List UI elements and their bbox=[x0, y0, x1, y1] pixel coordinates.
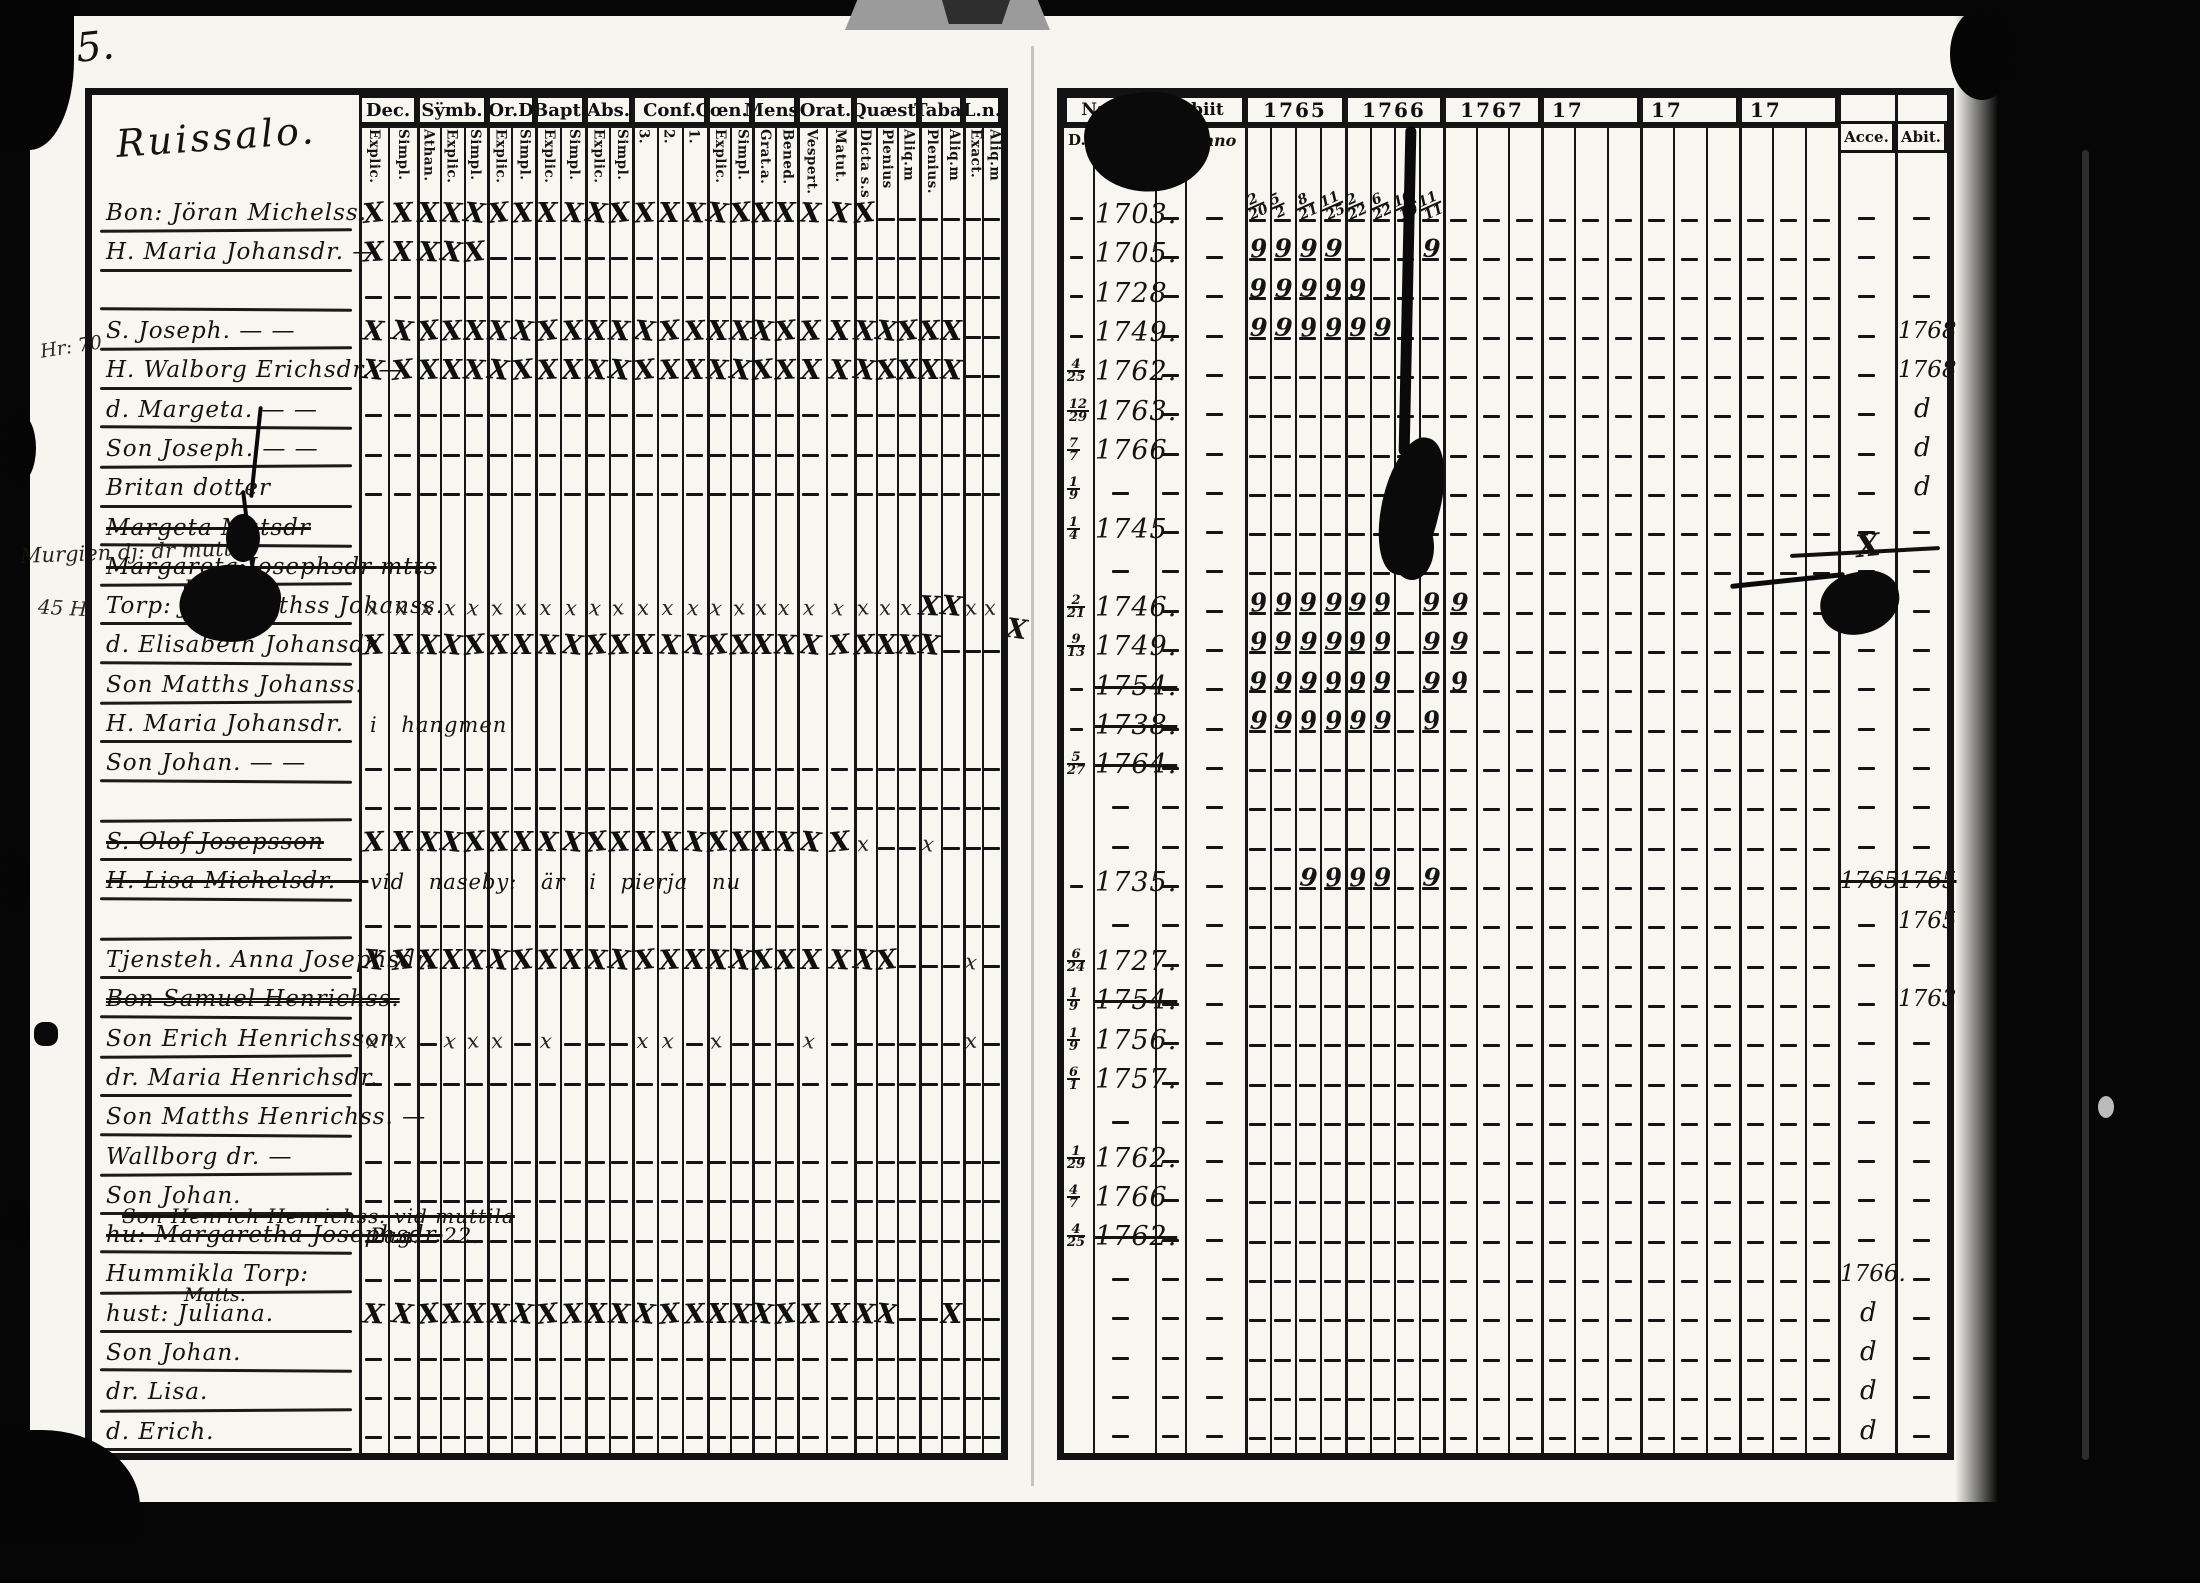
empty-mark-dash bbox=[394, 1083, 411, 1086]
empty-mark-dash bbox=[899, 1397, 916, 1400]
empty-mark-dash bbox=[1913, 295, 1930, 298]
empty-mark-dash bbox=[1206, 1003, 1223, 1006]
communion-mark: 9 bbox=[1421, 862, 1441, 893]
birth-year: 1756. bbox=[1095, 1025, 1177, 1056]
empty-mark-dash bbox=[1274, 1084, 1291, 1087]
attendance-x-mark: X bbox=[683, 197, 706, 229]
empty-mark-dash bbox=[732, 257, 749, 260]
empty-mark-dash bbox=[1714, 258, 1731, 261]
empty-mark-dash bbox=[636, 296, 653, 299]
empty-mark-dash bbox=[1648, 1084, 1665, 1087]
empty-mark-dash bbox=[856, 1240, 873, 1243]
attendance-x-mark: X bbox=[536, 355, 559, 387]
communion-mark: 9 bbox=[1421, 705, 1441, 736]
empty-mark-dash bbox=[1913, 1239, 1930, 1242]
birth-year: 1762. bbox=[1095, 356, 1177, 387]
birth-day-fraction: 77 bbox=[1067, 438, 1080, 462]
empty-mark-dash bbox=[1324, 1084, 1341, 1087]
empty-mark-dash bbox=[732, 296, 749, 299]
empty-mark-dash bbox=[777, 807, 794, 810]
empty-mark-dash bbox=[394, 1161, 411, 1164]
empty-mark-dash bbox=[1206, 924, 1223, 927]
empty-mark-dash bbox=[443, 296, 460, 299]
birth-year: 1766 bbox=[1095, 1182, 1168, 1213]
empty-mark-dash bbox=[1324, 808, 1341, 811]
empty-mark-dash bbox=[588, 296, 605, 299]
left-page-title: Ruissalo. bbox=[115, 108, 318, 166]
empty-mark-dash bbox=[1299, 1280, 1316, 1283]
empty-mark-dash bbox=[1249, 415, 1266, 418]
subcolumn-header: Explic. bbox=[541, 129, 555, 193]
birth-day-fraction: 14 bbox=[1067, 517, 1080, 541]
empty-mark-dash bbox=[365, 807, 382, 810]
film-streak bbox=[2082, 150, 2089, 1460]
empty-mark-dash bbox=[1516, 1162, 1533, 1165]
column-header: Sÿmb. bbox=[417, 95, 487, 125]
attendance-x-mark: X bbox=[392, 630, 413, 661]
empty-mark-dash bbox=[1549, 848, 1566, 851]
attendance-x-mark: X bbox=[773, 315, 797, 348]
abiit-ditto: d bbox=[1914, 433, 1931, 463]
empty-mark-dash bbox=[1450, 1201, 1467, 1204]
empty-mark-dash bbox=[564, 296, 581, 299]
empty-mark-dash bbox=[831, 1043, 848, 1046]
empty-mark-dash bbox=[1450, 572, 1467, 575]
attendance-x-mark: X bbox=[874, 1298, 898, 1331]
empty-mark-dash bbox=[1274, 1005, 1291, 1008]
empty-mark-dash bbox=[1324, 1437, 1341, 1440]
empty-mark-dash bbox=[1780, 376, 1797, 379]
empty-mark-dash bbox=[365, 768, 382, 771]
attendance-x-mark: X bbox=[361, 944, 385, 977]
empty-mark-dash bbox=[1348, 376, 1365, 379]
column-rule bbox=[1895, 95, 1898, 1453]
empty-mark-dash bbox=[1249, 1162, 1266, 1165]
empty-mark-dash bbox=[1714, 572, 1731, 575]
communion-mark: 9 bbox=[1349, 313, 1366, 342]
attendance-x-mark: X bbox=[439, 629, 463, 662]
empty-mark-dash bbox=[1483, 1201, 1500, 1204]
empty-mark-dash bbox=[1397, 769, 1414, 772]
attendance-x-mark: X bbox=[537, 198, 558, 229]
communion-mark: 9 bbox=[1373, 706, 1392, 736]
empty-mark-dash bbox=[1162, 1121, 1179, 1124]
empty-mark-dash bbox=[1582, 1005, 1599, 1008]
empty-mark-dash bbox=[983, 965, 1000, 968]
attendance-x-mark-light: x bbox=[540, 596, 552, 620]
empty-mark-dash bbox=[732, 493, 749, 496]
empty-mark-dash bbox=[856, 1279, 873, 1282]
subcolumn-header: Simpl. bbox=[566, 129, 580, 193]
attendance-x-mark: X bbox=[511, 197, 534, 229]
attendance-x-mark: X bbox=[799, 826, 823, 859]
empty-mark-dash bbox=[1373, 219, 1390, 222]
communion-mark: 9 bbox=[1374, 667, 1391, 696]
empty-mark-dash bbox=[636, 1397, 653, 1400]
empty-mark-dash bbox=[1422, 297, 1439, 300]
empty-mark-dash bbox=[1549, 651, 1566, 654]
attendance-x-mark: X bbox=[896, 630, 919, 662]
empty-mark-dash bbox=[754, 1397, 771, 1400]
empty-mark-dash bbox=[1858, 1160, 1875, 1163]
empty-mark-dash bbox=[899, 1161, 916, 1164]
empty-mark-dash bbox=[1483, 455, 1500, 458]
scanner-tab-dark bbox=[942, 0, 1010, 24]
empty-mark-dash bbox=[394, 1200, 411, 1203]
subcolumn-header: 2. bbox=[661, 129, 675, 193]
attendance-x-mark: X bbox=[706, 355, 729, 387]
attendance-x-mark-light: x bbox=[611, 595, 626, 620]
empty-mark-dash bbox=[1516, 1241, 1533, 1244]
birth-year: 1762. bbox=[1095, 1143, 1177, 1174]
empty-mark-dash bbox=[611, 768, 628, 771]
empty-mark-dash bbox=[365, 1436, 382, 1439]
empty-mark-dash bbox=[1348, 1241, 1365, 1244]
empty-mark-dash bbox=[1615, 966, 1632, 969]
attendance-x-mark: X bbox=[562, 355, 583, 386]
empty-mark-dash bbox=[686, 1161, 703, 1164]
attendance-x-mark: X bbox=[874, 354, 898, 387]
empty-mark-dash bbox=[899, 965, 916, 968]
abiit-year: 1768 bbox=[1898, 318, 1957, 344]
empty-mark-dash bbox=[1615, 1123, 1632, 1126]
empty-mark-dash bbox=[802, 1358, 819, 1361]
empty-mark-dash bbox=[1274, 848, 1291, 851]
empty-mark-dash bbox=[943, 257, 960, 260]
empty-mark-dash bbox=[1714, 1162, 1731, 1165]
empty-mark-dash bbox=[802, 1200, 819, 1203]
empty-mark-dash bbox=[1813, 1437, 1830, 1440]
attendance-x-mark: X bbox=[706, 197, 730, 230]
empty-mark-dash bbox=[420, 807, 437, 810]
empty-mark-dash bbox=[420, 1083, 437, 1086]
name-ruling-line bbox=[100, 269, 352, 272]
empty-mark-dash bbox=[878, 925, 895, 928]
empty-mark-dash bbox=[661, 925, 678, 928]
attendance-x-mark: X bbox=[658, 826, 681, 858]
empty-mark-dash bbox=[1206, 964, 1223, 967]
empty-mark-dash bbox=[943, 1279, 960, 1282]
communion-mark: 9 bbox=[1323, 862, 1343, 893]
empty-mark-dash bbox=[1450, 1044, 1467, 1047]
empty-mark-dash bbox=[490, 768, 507, 771]
empty-mark-dash bbox=[1615, 651, 1632, 654]
empty-mark-dash bbox=[1858, 1082, 1875, 1085]
subcolumn-header: Explic. bbox=[493, 129, 507, 193]
empty-mark-dash bbox=[394, 768, 411, 771]
subcolumn-rule bbox=[1607, 125, 1609, 1453]
birth-day-fraction: 221 bbox=[1067, 595, 1085, 619]
empty-mark-dash bbox=[1648, 966, 1665, 969]
empty-mark-dash bbox=[1913, 1317, 1930, 1320]
attendance-x-mark: X bbox=[418, 198, 439, 229]
empty-mark-dash bbox=[1516, 258, 1533, 261]
empty-mark-dash bbox=[732, 1161, 749, 1164]
attendance-x-mark: X bbox=[634, 630, 655, 661]
empty-mark-dash bbox=[1373, 1162, 1390, 1165]
empty-mark-dash bbox=[878, 768, 895, 771]
abiit-year: 1765 bbox=[1898, 908, 1957, 934]
empty-mark-dash bbox=[394, 454, 411, 457]
empty-mark-dash bbox=[1780, 533, 1797, 536]
attendance-x-mark: X bbox=[510, 315, 534, 348]
empty-mark-dash bbox=[539, 1279, 556, 1282]
empty-mark-dash bbox=[1206, 217, 1223, 220]
empty-mark-dash bbox=[1858, 1199, 1875, 1202]
subcolumn-header: Explic. bbox=[591, 129, 605, 193]
empty-mark-dash bbox=[661, 493, 678, 496]
attendance-x-mark: X bbox=[561, 315, 584, 347]
empty-mark-dash bbox=[1615, 1005, 1632, 1008]
attendance-x-mark: X bbox=[586, 316, 607, 347]
empty-mark-dash bbox=[1813, 1123, 1830, 1126]
birth-year: 1738. bbox=[1095, 710, 1177, 741]
empty-mark-dash bbox=[983, 257, 1000, 260]
attendance-x-mark-light: x bbox=[802, 1028, 817, 1053]
attendance-x-mark: X bbox=[362, 315, 385, 347]
empty-mark-dash bbox=[1483, 1437, 1500, 1440]
attendance-x-mark: X bbox=[510, 944, 534, 977]
empty-mark-dash bbox=[1582, 808, 1599, 811]
empty-mark-dash bbox=[1648, 1201, 1665, 1204]
attendance-x-mark: X bbox=[362, 826, 385, 858]
empty-mark-dash bbox=[1813, 808, 1830, 811]
attendance-x-mark-light: x bbox=[709, 1028, 724, 1053]
empty-mark-dash bbox=[564, 1043, 581, 1046]
attendance-x-mark: X bbox=[827, 629, 851, 662]
empty-mark-dash bbox=[964, 1083, 981, 1086]
attendance-x-mark: X bbox=[510, 1298, 534, 1331]
empty-mark-dash bbox=[564, 768, 581, 771]
empty-mark-dash bbox=[1681, 690, 1698, 693]
birth-year: 1766 bbox=[1095, 435, 1168, 466]
empty-mark-dash bbox=[466, 1358, 483, 1361]
empty-mark-dash bbox=[1549, 1044, 1566, 1047]
empty-mark-dash bbox=[899, 1200, 916, 1203]
empty-mark-dash bbox=[1780, 808, 1797, 811]
attendance-x-mark-light: x bbox=[662, 596, 674, 620]
empty-mark-dash bbox=[1450, 808, 1467, 811]
name-ruling-line bbox=[100, 464, 352, 469]
empty-mark-dash bbox=[1648, 887, 1665, 890]
empty-mark-dash bbox=[1483, 1044, 1500, 1047]
empty-mark-dash bbox=[1422, 1319, 1439, 1322]
empty-mark-dash bbox=[1780, 337, 1797, 340]
empty-mark-dash bbox=[754, 1200, 771, 1203]
empty-mark-dash bbox=[661, 1200, 678, 1203]
subcolumn-rule bbox=[1370, 125, 1372, 1453]
empty-mark-dash bbox=[1813, 1201, 1830, 1204]
empty-mark-dash bbox=[1249, 926, 1266, 929]
empty-mark-dash bbox=[1162, 256, 1179, 259]
scanned-register-page: 5. Ruissalo. Dec.Explic.Simpl.Sÿmb.Athan… bbox=[0, 0, 2200, 1583]
empty-mark-dash bbox=[899, 807, 916, 810]
empty-mark-dash bbox=[1249, 1201, 1266, 1204]
empty-mark-dash bbox=[611, 1279, 628, 1282]
empty-mark-dash bbox=[1780, 1280, 1797, 1283]
empty-mark-dash bbox=[394, 414, 411, 417]
empty-mark-dash bbox=[1450, 533, 1467, 536]
empty-mark-dash bbox=[1714, 966, 1731, 969]
empty-mark-dash bbox=[420, 1161, 437, 1164]
empty-mark-dash bbox=[611, 1358, 628, 1361]
empty-mark-dash bbox=[443, 1161, 460, 1164]
empty-mark-dash bbox=[611, 1397, 628, 1400]
empty-mark-dash bbox=[1681, 1280, 1698, 1283]
attendance-x-mark: X bbox=[729, 1298, 752, 1330]
empty-mark-dash bbox=[514, 296, 531, 299]
empty-mark-dash bbox=[1648, 1241, 1665, 1244]
entry-name: dr. Maria Henrichsdr. bbox=[106, 1065, 378, 1091]
empty-mark-dash bbox=[964, 1200, 981, 1203]
empty-mark-dash bbox=[1681, 848, 1698, 851]
empty-mark-dash bbox=[1516, 1280, 1533, 1283]
empty-mark-dash bbox=[1615, 533, 1632, 536]
empty-mark-dash bbox=[1274, 1319, 1291, 1322]
empty-mark-dash bbox=[539, 768, 556, 771]
empty-mark-dash bbox=[1615, 769, 1632, 772]
empty-mark-dash bbox=[365, 1397, 382, 1400]
empty-mark-dash bbox=[1397, 887, 1414, 890]
empty-mark-dash bbox=[564, 1083, 581, 1086]
empty-mark-dash bbox=[1324, 1241, 1341, 1244]
attendance-x-mark: X bbox=[584, 197, 608, 230]
empty-mark-dash bbox=[611, 925, 628, 928]
empty-mark-dash bbox=[1615, 887, 1632, 890]
empty-mark-dash bbox=[365, 414, 382, 417]
empty-mark-dash bbox=[899, 847, 916, 850]
empty-mark-dash bbox=[1373, 926, 1390, 929]
birth-year: 1754. bbox=[1095, 671, 1177, 702]
empty-mark-dash bbox=[1780, 572, 1797, 575]
empty-mark-dash bbox=[1582, 1123, 1599, 1126]
attendance-x-mark: X bbox=[584, 629, 608, 662]
empty-mark-dash bbox=[1397, 1319, 1414, 1322]
name-ruling-line bbox=[100, 1330, 352, 1333]
empty-mark-dash bbox=[1373, 376, 1390, 379]
empty-mark-dash bbox=[1813, 1359, 1830, 1362]
attendance-x-mark: X bbox=[799, 1298, 822, 1330]
empty-mark-dash bbox=[1397, 966, 1414, 969]
empty-mark-dash bbox=[1450, 1162, 1467, 1165]
communion-mark: 9 bbox=[1323, 627, 1343, 658]
empty-mark-dash bbox=[1483, 769, 1500, 772]
empty-mark-dash bbox=[1858, 295, 1875, 298]
empty-mark-dash bbox=[1780, 1123, 1797, 1126]
empty-mark-dash bbox=[1747, 1123, 1764, 1126]
attendance-x-mark-light: x bbox=[490, 1028, 503, 1053]
empty-mark-dash bbox=[1549, 297, 1566, 300]
empty-mark-dash bbox=[983, 218, 1000, 221]
empty-mark-dash bbox=[514, 493, 531, 496]
empty-mark-dash bbox=[1813, 1005, 1830, 1008]
empty-mark-dash bbox=[490, 454, 507, 457]
empty-mark-dash bbox=[539, 1436, 556, 1439]
empty-mark-dash bbox=[1373, 966, 1390, 969]
empty-mark-dash bbox=[1249, 1437, 1266, 1440]
attendance-x-mark: X bbox=[417, 355, 440, 387]
empty-mark-dash bbox=[1206, 1042, 1223, 1045]
birth-year: 1745 bbox=[1095, 514, 1168, 545]
name-ruling-line bbox=[100, 818, 352, 823]
empty-mark-dash bbox=[802, 925, 819, 928]
empty-mark-dash bbox=[921, 1358, 938, 1361]
empty-mark-dash bbox=[1249, 572, 1266, 575]
empty-mark-dash bbox=[420, 296, 437, 299]
empty-mark-dash bbox=[943, 1043, 960, 1046]
empty-mark-dash bbox=[1913, 846, 1930, 849]
empty-mark-dash bbox=[856, 807, 873, 810]
empty-mark-dash bbox=[490, 414, 507, 417]
attendance-x-mark: X bbox=[728, 944, 752, 977]
empty-mark-dash bbox=[1747, 966, 1764, 969]
empty-mark-dash bbox=[1274, 1359, 1291, 1362]
accessit-scribble-x: X bbox=[1854, 527, 1882, 565]
subcolumn-header: Bened. bbox=[780, 129, 794, 193]
empty-mark-dash bbox=[420, 1043, 437, 1046]
empty-mark-dash bbox=[1813, 1280, 1830, 1283]
attendance-x-mark: X bbox=[657, 1298, 681, 1331]
empty-mark-dash bbox=[1112, 1357, 1129, 1360]
empty-mark-dash bbox=[611, 1436, 628, 1439]
communion-mark: 9 bbox=[1249, 313, 1268, 343]
empty-mark-dash bbox=[1648, 848, 1665, 851]
empty-mark-dash bbox=[1162, 453, 1179, 456]
accessit-header: Acce. bbox=[1838, 121, 1895, 153]
empty-mark-dash bbox=[1582, 1162, 1599, 1165]
attendance-x-mark: X bbox=[608, 197, 632, 230]
empty-mark-dash bbox=[856, 1161, 873, 1164]
empty-mark-dash bbox=[1483, 1319, 1500, 1322]
empty-mark-dash bbox=[754, 1436, 771, 1439]
empty-mark-dash bbox=[1681, 297, 1698, 300]
name-ruling-line bbox=[100, 1015, 352, 1020]
empty-mark-dash bbox=[1450, 966, 1467, 969]
empty-mark-dash bbox=[943, 847, 960, 850]
empty-mark-dash bbox=[443, 1240, 460, 1243]
empty-mark-dash bbox=[1162, 1239, 1179, 1242]
empty-mark-dash bbox=[1681, 533, 1698, 536]
empty-mark-dash bbox=[856, 1200, 873, 1203]
empty-mark-dash bbox=[983, 1083, 1000, 1086]
empty-mark-dash bbox=[964, 768, 981, 771]
empty-mark-dash bbox=[588, 1161, 605, 1164]
empty-mark-dash bbox=[1681, 1044, 1698, 1047]
communion-mark: 9 bbox=[1374, 863, 1391, 892]
empty-mark-dash bbox=[1162, 767, 1179, 770]
empty-mark-dash bbox=[1397, 1437, 1414, 1440]
communion-mark: 9 bbox=[1323, 233, 1343, 264]
empty-mark-dash bbox=[1858, 964, 1875, 967]
empty-mark-dash bbox=[1858, 1121, 1875, 1124]
name-ruling-line bbox=[100, 387, 352, 390]
attendance-x-mark: X bbox=[417, 826, 440, 858]
empty-mark-dash bbox=[1348, 1084, 1365, 1087]
empty-mark-dash bbox=[1681, 808, 1698, 811]
attendance-x-mark-light: x bbox=[637, 1029, 649, 1053]
name-ruling-line bbox=[100, 425, 352, 430]
scan-edge-blot bbox=[0, 412, 36, 484]
birth-day-fraction: 61 bbox=[1067, 1067, 1080, 1091]
empty-mark-dash bbox=[1516, 612, 1533, 615]
empty-mark-dash bbox=[1813, 533, 1830, 536]
empty-mark-dash bbox=[899, 296, 916, 299]
empty-mark-dash bbox=[686, 1200, 703, 1203]
empty-mark-dash bbox=[539, 807, 556, 810]
attendance-x-mark: X bbox=[512, 630, 533, 661]
birth-day-fraction: 527 bbox=[1067, 752, 1085, 776]
empty-mark-dash bbox=[466, 1240, 483, 1243]
